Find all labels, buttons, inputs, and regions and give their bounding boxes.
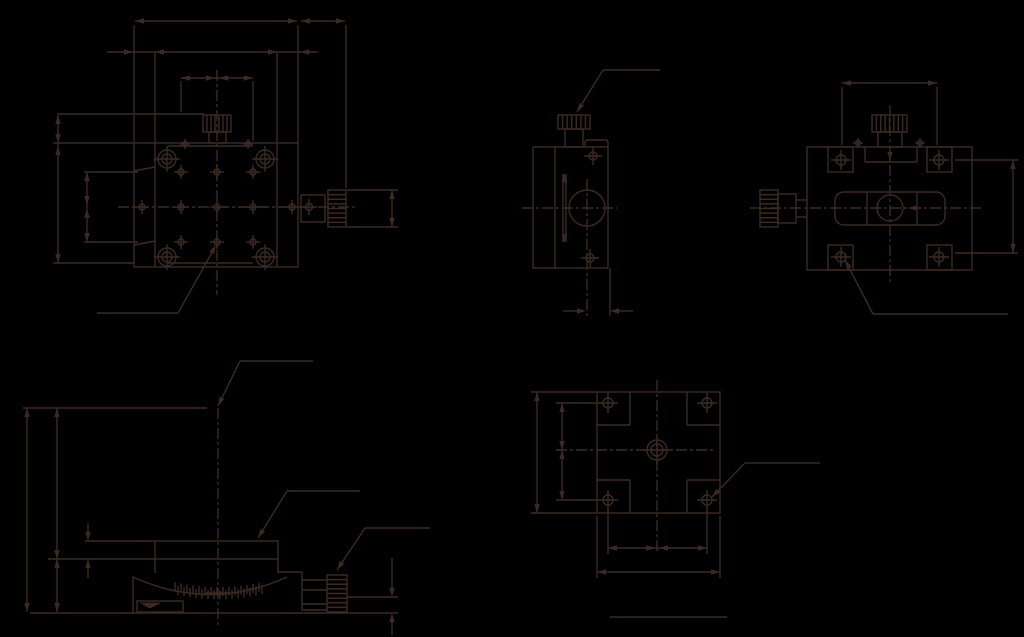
view-top-view-stage bbox=[53, 18, 398, 313]
view-side-view-stage bbox=[522, 70, 660, 316]
view-rear-view-stage bbox=[750, 80, 1018, 314]
dimension-arrowhead bbox=[55, 146, 60, 155]
dimension-arrowhead bbox=[1010, 160, 1015, 169]
dimension-arrowhead bbox=[55, 134, 60, 143]
dimension-arrowhead bbox=[559, 441, 564, 450]
leader-line bbox=[577, 70, 603, 112]
knurled-knob bbox=[558, 115, 590, 129]
dimension-arrowhead bbox=[54, 550, 59, 559]
technical-drawing-page bbox=[0, 0, 1024, 637]
dimension-arrowhead bbox=[268, 49, 277, 54]
dimension-arrowhead bbox=[244, 75, 253, 80]
leader-line bbox=[258, 491, 287, 538]
dimension-arrowhead bbox=[646, 545, 655, 550]
dimension-arrowhead bbox=[55, 115, 60, 124]
dimension-arrowhead bbox=[698, 545, 707, 550]
knob-stem bbox=[565, 129, 583, 147]
dimension-arrowhead bbox=[85, 559, 90, 568]
platform-outline bbox=[155, 541, 278, 559]
dimension-arrowhead bbox=[135, 18, 144, 23]
dimension-arrowhead bbox=[711, 569, 720, 574]
dimension-arrowhead bbox=[54, 408, 59, 417]
dimension-arrowhead bbox=[55, 254, 60, 263]
dimension-arrowhead bbox=[559, 450, 564, 459]
dimension-arrowhead bbox=[209, 245, 216, 254]
view-front-elevation-goniometer bbox=[23, 361, 430, 635]
dimension-arrowhead bbox=[928, 80, 937, 85]
dimension-arrowhead bbox=[336, 18, 345, 23]
leader-line bbox=[178, 247, 215, 313]
leader-line bbox=[845, 260, 873, 314]
edge-line bbox=[134, 167, 155, 171]
dimension-arrowhead bbox=[54, 559, 59, 568]
dimension-arrowhead bbox=[559, 403, 564, 412]
dimension-arrowhead bbox=[124, 49, 133, 54]
dimension-arrowhead bbox=[610, 308, 619, 313]
plate-outline bbox=[597, 392, 720, 513]
dimension-arrowhead bbox=[300, 49, 309, 54]
dimension-arrowhead bbox=[84, 209, 89, 218]
dimension-arrowhead bbox=[288, 18, 297, 23]
view-bottom-view-plate bbox=[531, 380, 820, 617]
leader-line bbox=[218, 361, 240, 406]
dimension-arrowhead bbox=[389, 218, 394, 227]
dimension-arrowhead bbox=[84, 172, 89, 181]
dimension-arrowhead bbox=[84, 233, 89, 242]
dimension-arrowhead bbox=[181, 75, 190, 80]
dimension-arrowhead bbox=[559, 491, 564, 500]
dimension-arrowhead bbox=[24, 603, 29, 612]
dimension-arrowhead bbox=[389, 588, 394, 597]
dimension-arrowhead bbox=[206, 75, 215, 80]
dimension-arrowhead bbox=[84, 196, 89, 205]
technical-drawing-canvas bbox=[0, 0, 1024, 637]
M585,147 L585,143 Q585,140 588,140 L605,140 Q608,140 608,143 L608,147 bbox=[585, 140, 608, 147]
knurled-knob bbox=[328, 190, 346, 227]
dimension-arrowhead bbox=[534, 392, 539, 401]
dimension-arrowhead bbox=[842, 80, 851, 85]
dimension-arrowhead bbox=[389, 613, 394, 622]
dimension-arrowhead bbox=[24, 408, 29, 417]
dimension-arrowhead bbox=[389, 190, 394, 199]
dimension-arrowhead bbox=[659, 545, 668, 550]
M141,603 L160,603 L150,608 Z bbox=[141, 603, 160, 608]
dimension-arrowhead bbox=[534, 504, 539, 513]
M133,577 Q210,612 287,577 bbox=[133, 577, 287, 595]
dimension-arrowhead bbox=[597, 569, 606, 574]
dimension-arrowhead bbox=[155, 49, 164, 54]
dimension-arrowhead bbox=[608, 545, 617, 550]
dimension-arrowhead bbox=[301, 18, 310, 23]
leader-line bbox=[337, 528, 365, 570]
dimension-arrowhead bbox=[54, 603, 59, 612]
dimension-arrowhead bbox=[219, 75, 228, 80]
knob-flange bbox=[301, 195, 325, 222]
knurled-knob bbox=[327, 575, 347, 612]
dimension-arrowhead bbox=[1010, 244, 1015, 253]
dimension-arrowhead bbox=[577, 308, 586, 313]
dimension-arrowhead bbox=[85, 532, 90, 541]
